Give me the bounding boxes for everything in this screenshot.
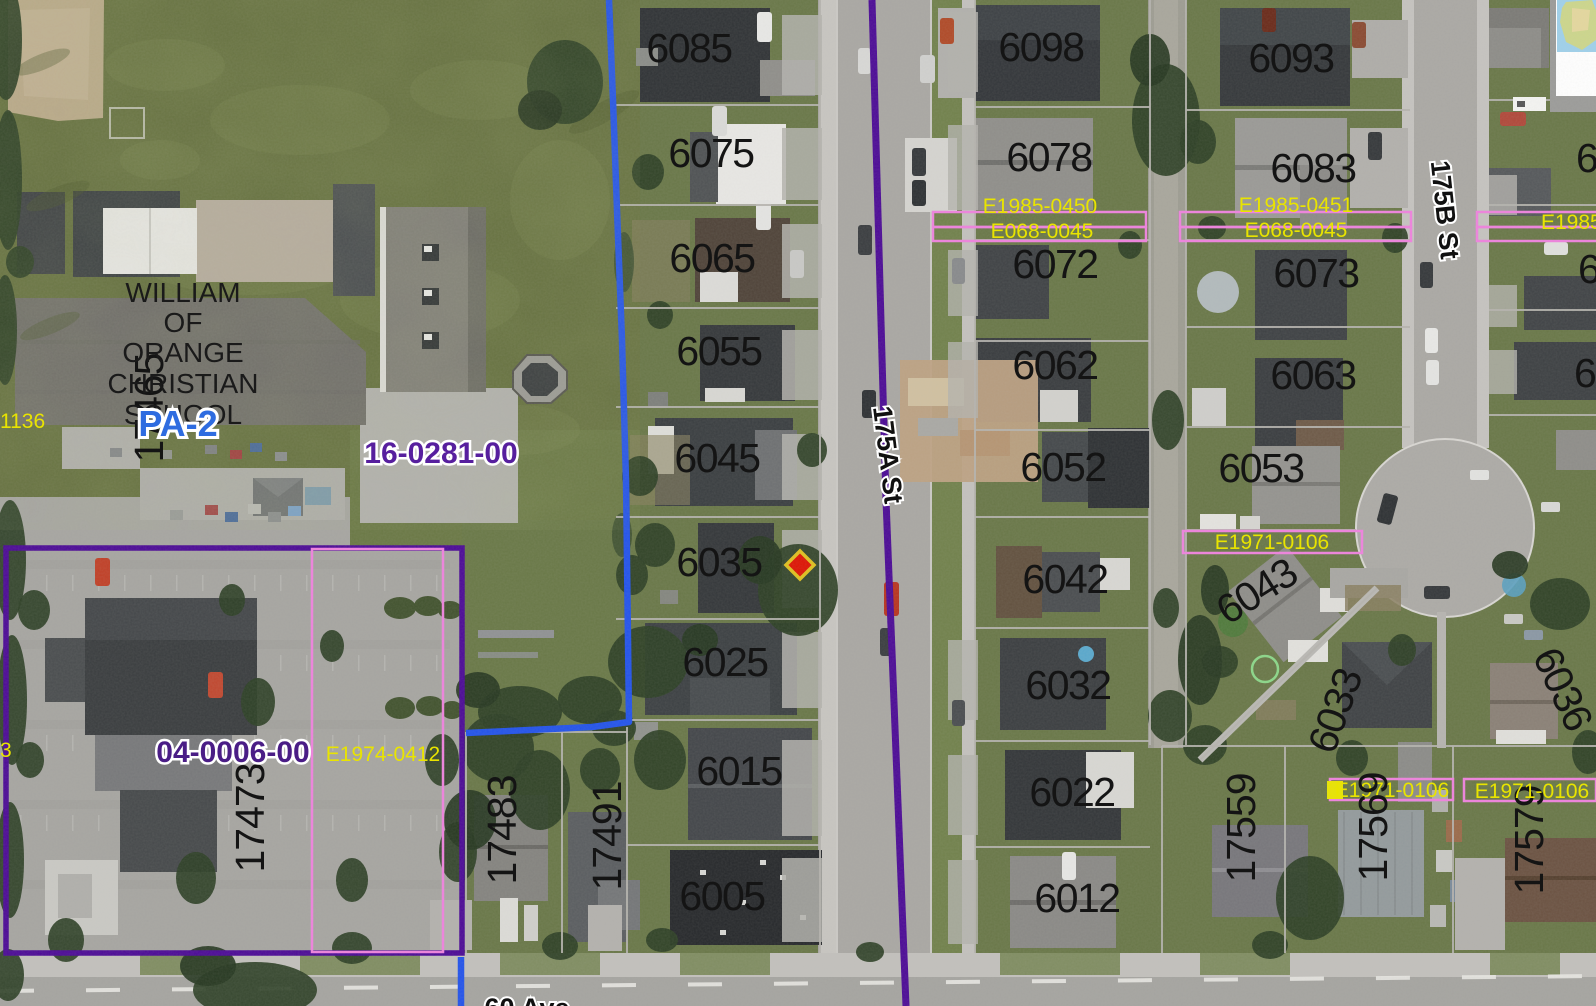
svg-text:6032: 6032: [1025, 662, 1110, 708]
svg-text:E1985-0450: E1985-0450: [983, 195, 1097, 218]
svg-text:17491: 17491: [584, 781, 630, 890]
svg-text:6063: 6063: [1270, 352, 1355, 398]
svg-text:PA-2: PA-2: [138, 403, 217, 444]
svg-text:60: 60: [1574, 350, 1596, 396]
svg-text:6012: 6012: [1034, 875, 1119, 921]
svg-text:E1971-0106: E1971-0106: [1215, 531, 1329, 554]
svg-text:04-0006-00: 04-0006-00: [156, 736, 309, 769]
svg-text:WILLIAM: WILLIAM: [125, 277, 240, 308]
svg-text:3: 3: [0, 739, 12, 762]
svg-text:6083: 6083: [1270, 145, 1355, 191]
svg-text:6072: 6072: [1012, 241, 1097, 287]
svg-text:17559: 17559: [1218, 773, 1264, 882]
svg-text:6078: 6078: [1006, 134, 1092, 180]
svg-text:1136: 1136: [0, 410, 45, 433]
svg-text:E068-0045: E068-0045: [991, 220, 1094, 243]
svg-text:6035: 6035: [676, 539, 762, 585]
svg-text:E068-0045: E068-0045: [1245, 219, 1348, 242]
svg-text:6073: 6073: [1273, 250, 1358, 296]
svg-text:17473: 17473: [227, 763, 273, 872]
svg-text:6052: 6052: [1020, 444, 1105, 490]
svg-text:6045: 6045: [674, 435, 760, 481]
svg-text:6075: 6075: [668, 130, 754, 176]
svg-text:60: 60: [1576, 135, 1596, 181]
svg-text:17569: 17569: [1350, 772, 1396, 881]
svg-text:6098: 6098: [998, 24, 1084, 70]
svg-text:OF: OF: [164, 307, 203, 338]
svg-text:E1985-0452: E1985-0452: [1541, 211, 1596, 234]
svg-text:6053: 6053: [1218, 445, 1303, 491]
svg-text:6005: 6005: [679, 873, 765, 919]
svg-text:6042: 6042: [1022, 556, 1107, 602]
svg-text:6055: 6055: [676, 328, 762, 374]
svg-text:6025: 6025: [682, 639, 768, 685]
svg-text:60 Ave: 60 Ave: [484, 993, 569, 1006]
svg-text:17483: 17483: [479, 775, 525, 884]
svg-text:60: 60: [1578, 246, 1596, 292]
svg-text:6015: 6015: [696, 748, 782, 794]
svg-text:6085: 6085: [646, 25, 732, 71]
svg-text:6065: 6065: [669, 235, 755, 281]
svg-text:6022: 6022: [1029, 769, 1114, 815]
svg-text:E1971-0106: E1971-0106: [1475, 780, 1589, 803]
svg-text:6062: 6062: [1012, 342, 1097, 388]
svg-text:16-0281-00: 16-0281-00: [364, 437, 517, 470]
svg-text:ORANGE: ORANGE: [122, 337, 243, 368]
svg-text:E1974-0412: E1974-0412: [326, 743, 440, 766]
svg-text:E1985-0451: E1985-0451: [1239, 194, 1353, 217]
svg-text:6093: 6093: [1248, 35, 1333, 81]
svg-text:CHRISTIAN: CHRISTIAN: [108, 368, 259, 399]
